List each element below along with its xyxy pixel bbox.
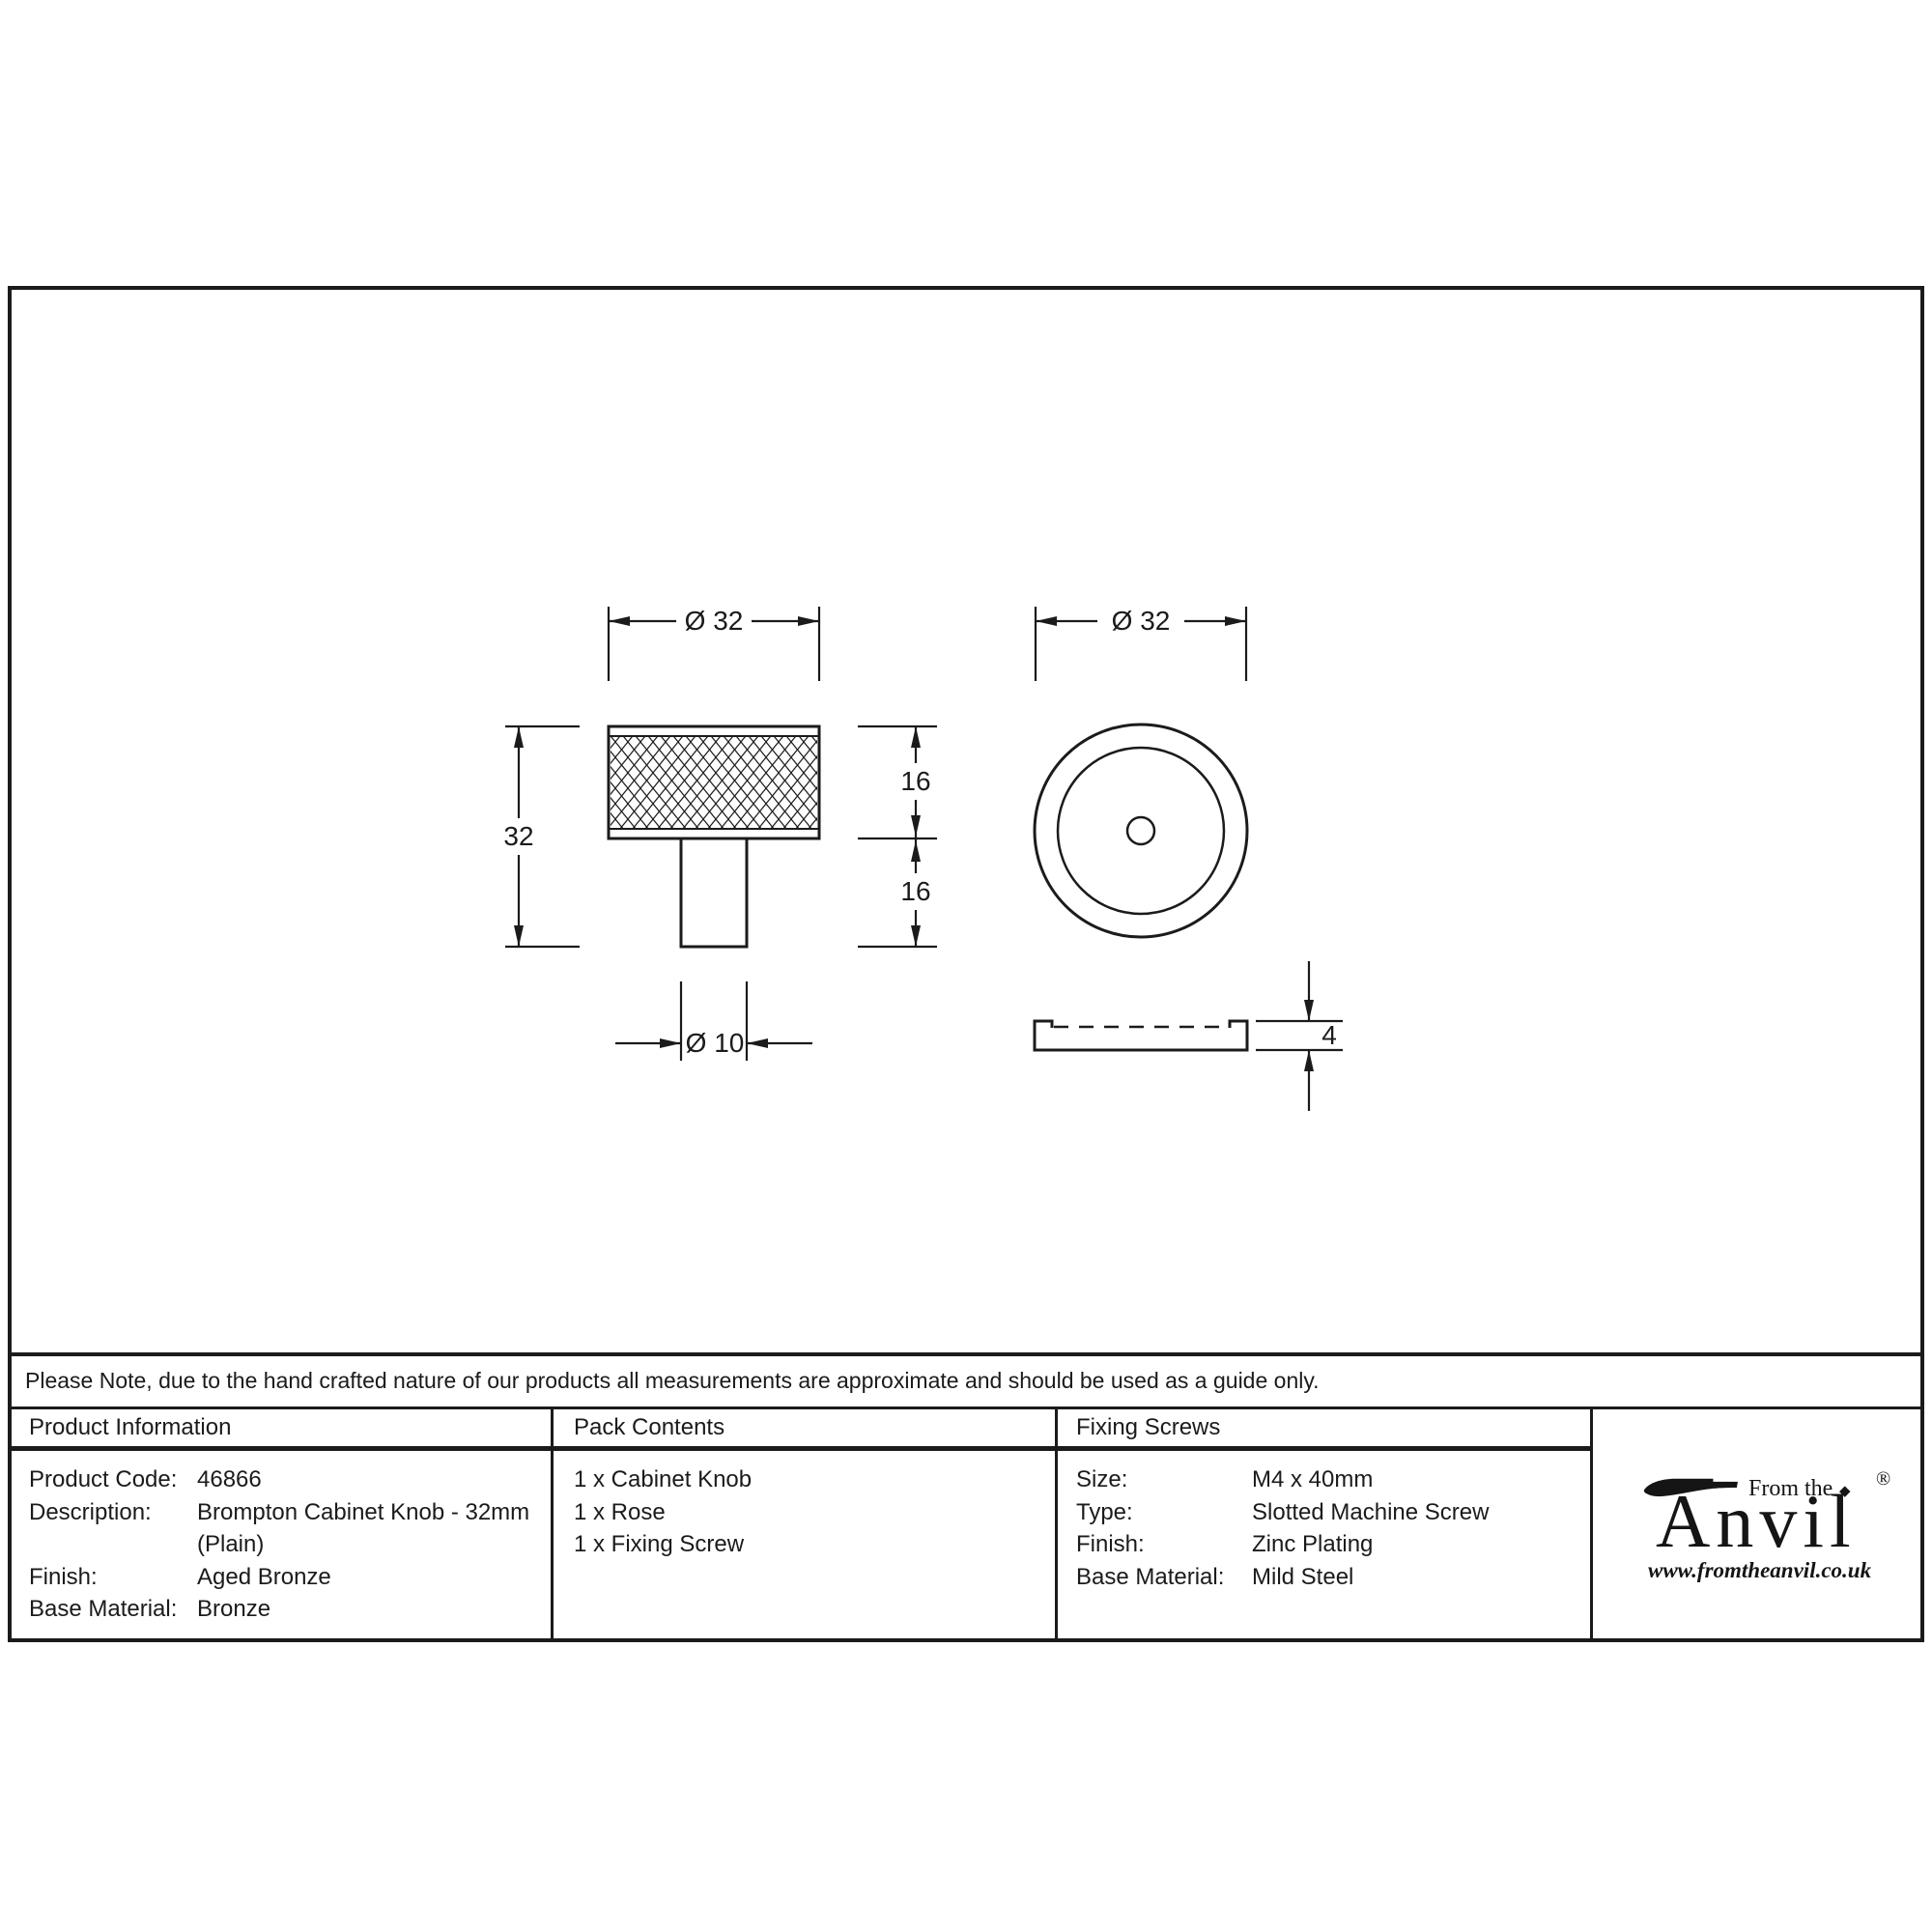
front-view: [1035, 607, 1343, 1111]
rose-outer-circle: [1035, 724, 1247, 937]
field-value: Brompton Cabinet Knob - 32mm: [197, 1496, 529, 1529]
field-label: Base Material:: [1076, 1561, 1252, 1594]
dim-label-side-diameter: Ø 32: [685, 606, 744, 637]
arrowhead: [514, 925, 524, 947]
rose-profile: [1035, 1021, 1247, 1050]
field-value: Bronze: [197, 1593, 529, 1626]
side-view: [505, 607, 937, 1061]
arrowhead: [798, 616, 819, 626]
header-row-bottom-rule: [8, 1446, 1590, 1451]
pack-contents-cell: 1 x Cabinet Knob 1 x Rose 1 x Fixing Scr…: [574, 1463, 752, 1561]
dim-label-stem-diameter: Ø 10: [686, 1028, 745, 1059]
fixing-screws-cell: Size: M4 x 40mm Type: Slotted Machine Sc…: [1076, 1463, 1489, 1593]
anvil-icon: [1642, 1476, 1741, 1503]
pack-item: 1 x Cabinet Knob: [574, 1463, 752, 1496]
pack-item: 1 x Fixing Screw: [574, 1528, 752, 1561]
dim-head-stem-heights: [858, 726, 937, 947]
arrowhead: [514, 726, 524, 748]
measurement-note: Please Note, due to the hand crafted nat…: [25, 1355, 1320, 1406]
dim-label-overall-height: 32: [497, 818, 540, 855]
field-label: Size:: [1076, 1463, 1252, 1496]
knurl-texture: [611, 737, 817, 828]
arrowhead: [1225, 616, 1246, 626]
technical-drawing: [0, 0, 1932, 1932]
spec-sheet: Ø 32 32 16 16 Ø 10 Ø 32 4 Please Note, d…: [0, 0, 1932, 1932]
field-label: Finish:: [29, 1561, 197, 1594]
arrowhead: [911, 815, 921, 837]
field-label: Description:: [29, 1496, 197, 1529]
field-value: Slotted Machine Screw: [1252, 1496, 1489, 1529]
arrowhead: [609, 616, 630, 626]
field-value: Zinc Plating: [1252, 1528, 1489, 1561]
field-label: Product Code:: [29, 1463, 197, 1496]
field-label: Base Material:: [29, 1593, 197, 1626]
header-product-information: Product Information: [29, 1409, 231, 1446]
field-label: Type:: [1076, 1496, 1252, 1529]
arrowhead: [911, 925, 921, 947]
brand-logo: Anvil From the ◆ ® www.fromtheanvil.co.u…: [1634, 1461, 1901, 1605]
knob-stem: [681, 838, 747, 947]
arrowhead: [660, 1038, 681, 1048]
arrowhead: [911, 840, 921, 862]
table-divider-1: [551, 1406, 554, 1642]
arrowhead: [1036, 616, 1057, 626]
table-divider-2: [1055, 1406, 1058, 1642]
field-value: M4 x 40mm: [1252, 1463, 1489, 1496]
field-value: Mild Steel: [1252, 1561, 1489, 1594]
note-row-bottom-rule: [8, 1406, 1924, 1409]
product-information-cell: Product Code: 46866 Description: Brompto…: [29, 1463, 529, 1626]
pack-item: 1 x Rose: [574, 1496, 752, 1529]
arrowhead: [1304, 1000, 1314, 1021]
field-label: Finish:: [1076, 1528, 1252, 1561]
header-fixing-screws: Fixing Screws: [1076, 1409, 1220, 1446]
field-value: Aged Bronze: [197, 1561, 529, 1594]
table-divider-3: [1590, 1406, 1593, 1642]
field-value: (Plain): [197, 1528, 529, 1561]
field-value: 46866: [197, 1463, 529, 1496]
dim-label-stem-height: 16: [894, 873, 937, 910]
dim-label-head-height: 16: [894, 763, 937, 800]
header-pack-contents: Pack Contents: [574, 1409, 724, 1446]
arrowhead: [911, 726, 921, 748]
arrowhead: [747, 1038, 768, 1048]
arrowhead: [1304, 1050, 1314, 1071]
field-label: [29, 1528, 197, 1561]
registered-trademark-symbol: ®: [1876, 1468, 1890, 1491]
dim-label-front-diameter: Ø 32: [1112, 606, 1171, 637]
dim-label-rose-thickness: 4: [1321, 1020, 1337, 1051]
